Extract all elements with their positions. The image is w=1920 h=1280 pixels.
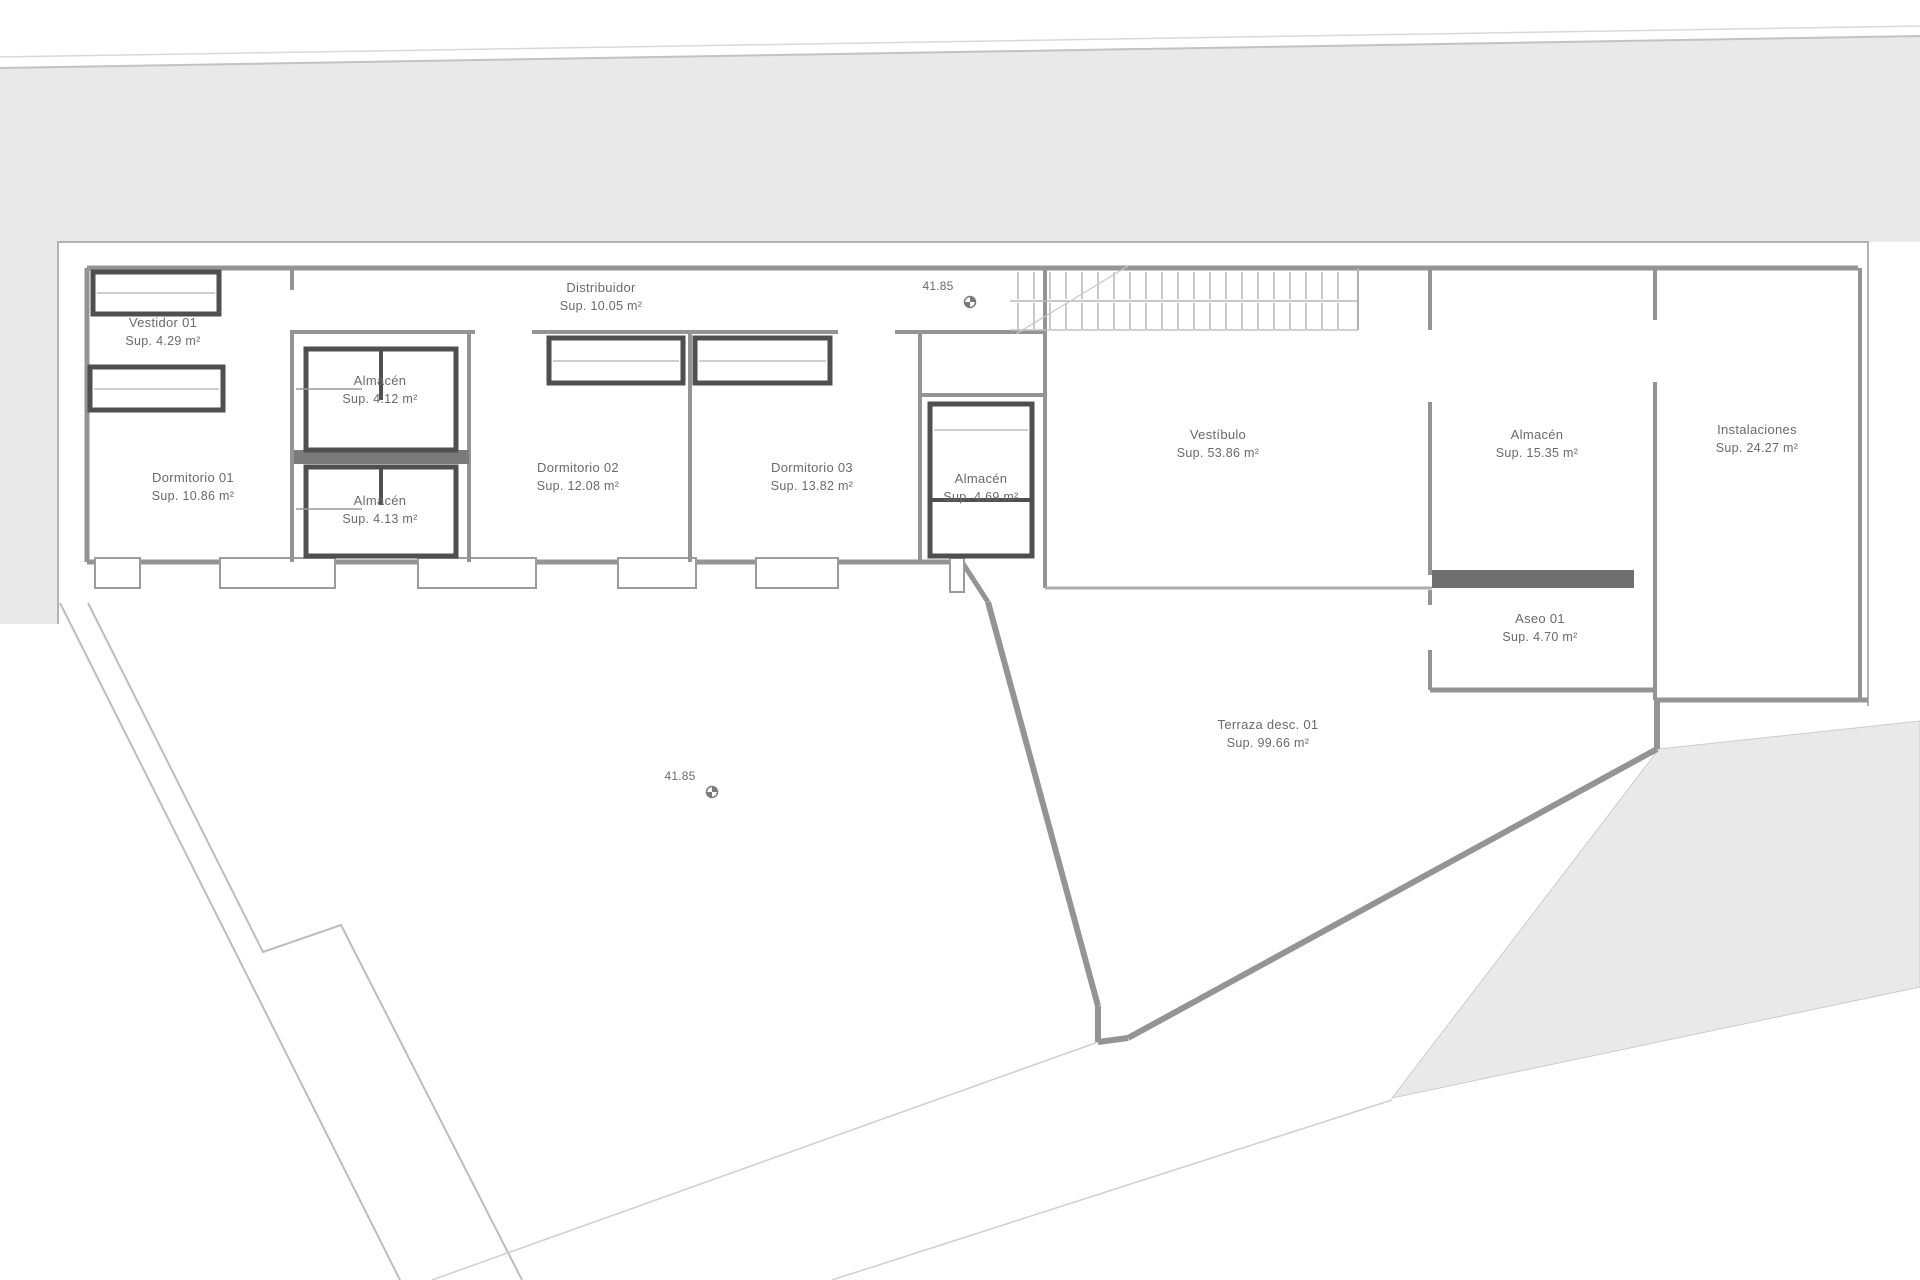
room-name: Almacén xyxy=(955,471,1008,486)
room-name: Dormitorio 03 xyxy=(771,460,853,475)
site-background xyxy=(0,0,1920,1280)
room-name: Terraza desc. 01 xyxy=(1218,717,1319,732)
room-area: Sup. 53.86 m² xyxy=(1177,446,1259,460)
opening-sill xyxy=(95,558,140,588)
room-area: Sup. 12.08 m² xyxy=(537,479,619,493)
almacen-aseo-band xyxy=(1432,570,1634,588)
room-name: Almacén xyxy=(354,493,407,508)
site-area-left xyxy=(0,242,58,624)
room-name: Aseo 01 xyxy=(1515,611,1565,626)
room-name: Almacén xyxy=(354,373,407,388)
room-area: Sup. 4.29 m² xyxy=(125,334,200,348)
opening-sill xyxy=(618,558,696,588)
opening-sill xyxy=(418,558,536,588)
room-name: Almacén xyxy=(1511,427,1564,442)
floor-plan-svg: Vestidor 01Sup. 4.29 m²Dormitorio 01Sup.… xyxy=(0,0,1920,1280)
room-area: Sup. 4.70 m² xyxy=(1502,630,1577,644)
floor-plan-page: Vestidor 01Sup. 4.29 m²Dormitorio 01Sup.… xyxy=(0,0,1920,1280)
room-area: Sup. 15.35 m² xyxy=(1496,446,1578,460)
room-name: Distribuidor xyxy=(566,280,636,295)
room-area: Sup. 13.82 m² xyxy=(771,479,853,493)
room-name: Instalaciones xyxy=(1717,422,1797,437)
site-area-top xyxy=(0,36,1920,242)
room-name: Vestíbulo xyxy=(1190,427,1246,442)
opening-sill xyxy=(756,558,838,588)
room-area: Sup. 4.12 m² xyxy=(342,392,417,406)
room-area: Sup. 10.05 m² xyxy=(560,299,642,313)
room-area: Sup. 99.66 m² xyxy=(1227,736,1309,750)
facade-openings xyxy=(95,558,964,592)
room-name: Dormitorio 01 xyxy=(152,470,234,485)
terrace-door-jamb xyxy=(950,558,964,592)
room-name: Vestidor 01 xyxy=(129,315,197,330)
level-value: 41.85 xyxy=(664,769,695,783)
room-area: Sup. 4.13 m² xyxy=(342,512,417,526)
room-area: Sup. 24.27 m² xyxy=(1716,441,1798,455)
level-value: 41.85 xyxy=(922,279,953,293)
room-area: Sup. 4.69 m² xyxy=(943,490,1018,504)
opening-sill xyxy=(220,558,335,588)
room-area: Sup. 10.86 m² xyxy=(152,489,234,503)
room-name: Dormitorio 02 xyxy=(537,460,619,475)
